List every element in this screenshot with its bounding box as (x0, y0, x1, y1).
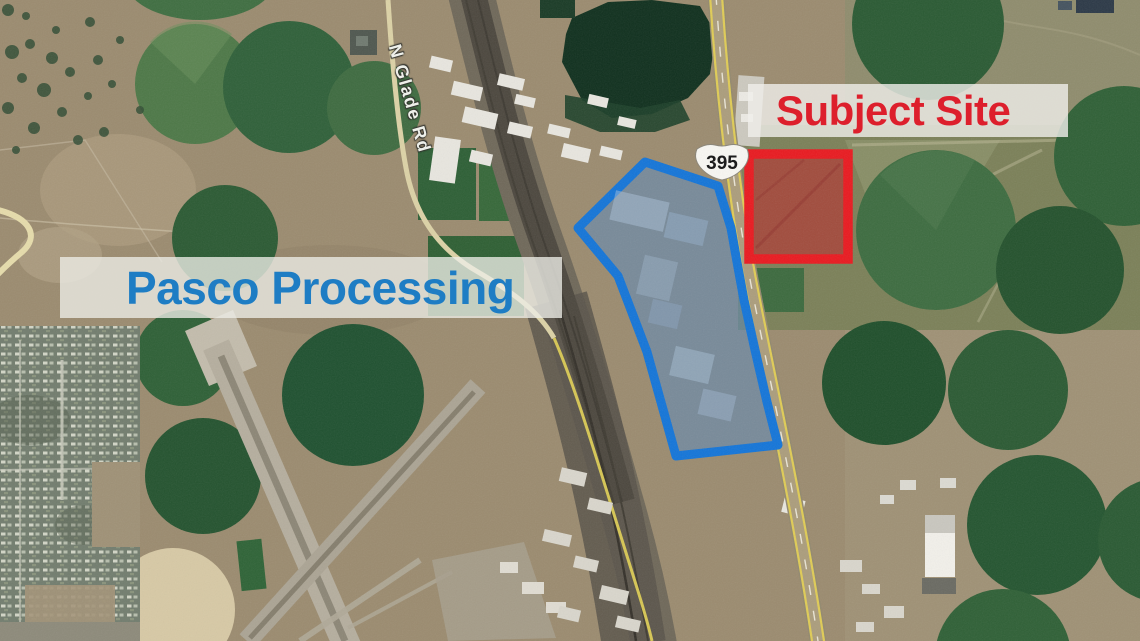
subject-site-label-text: Subject Site (776, 87, 1010, 135)
subject-site-label: Subject Site (748, 84, 1068, 137)
pasco-processing-label-text: Pasco Processing (126, 261, 514, 315)
pasco-processing-label: Pasco Processing (60, 257, 562, 318)
aerial-map: 395 N Glade Rd Pasco Processing Subject … (0, 0, 1140, 641)
